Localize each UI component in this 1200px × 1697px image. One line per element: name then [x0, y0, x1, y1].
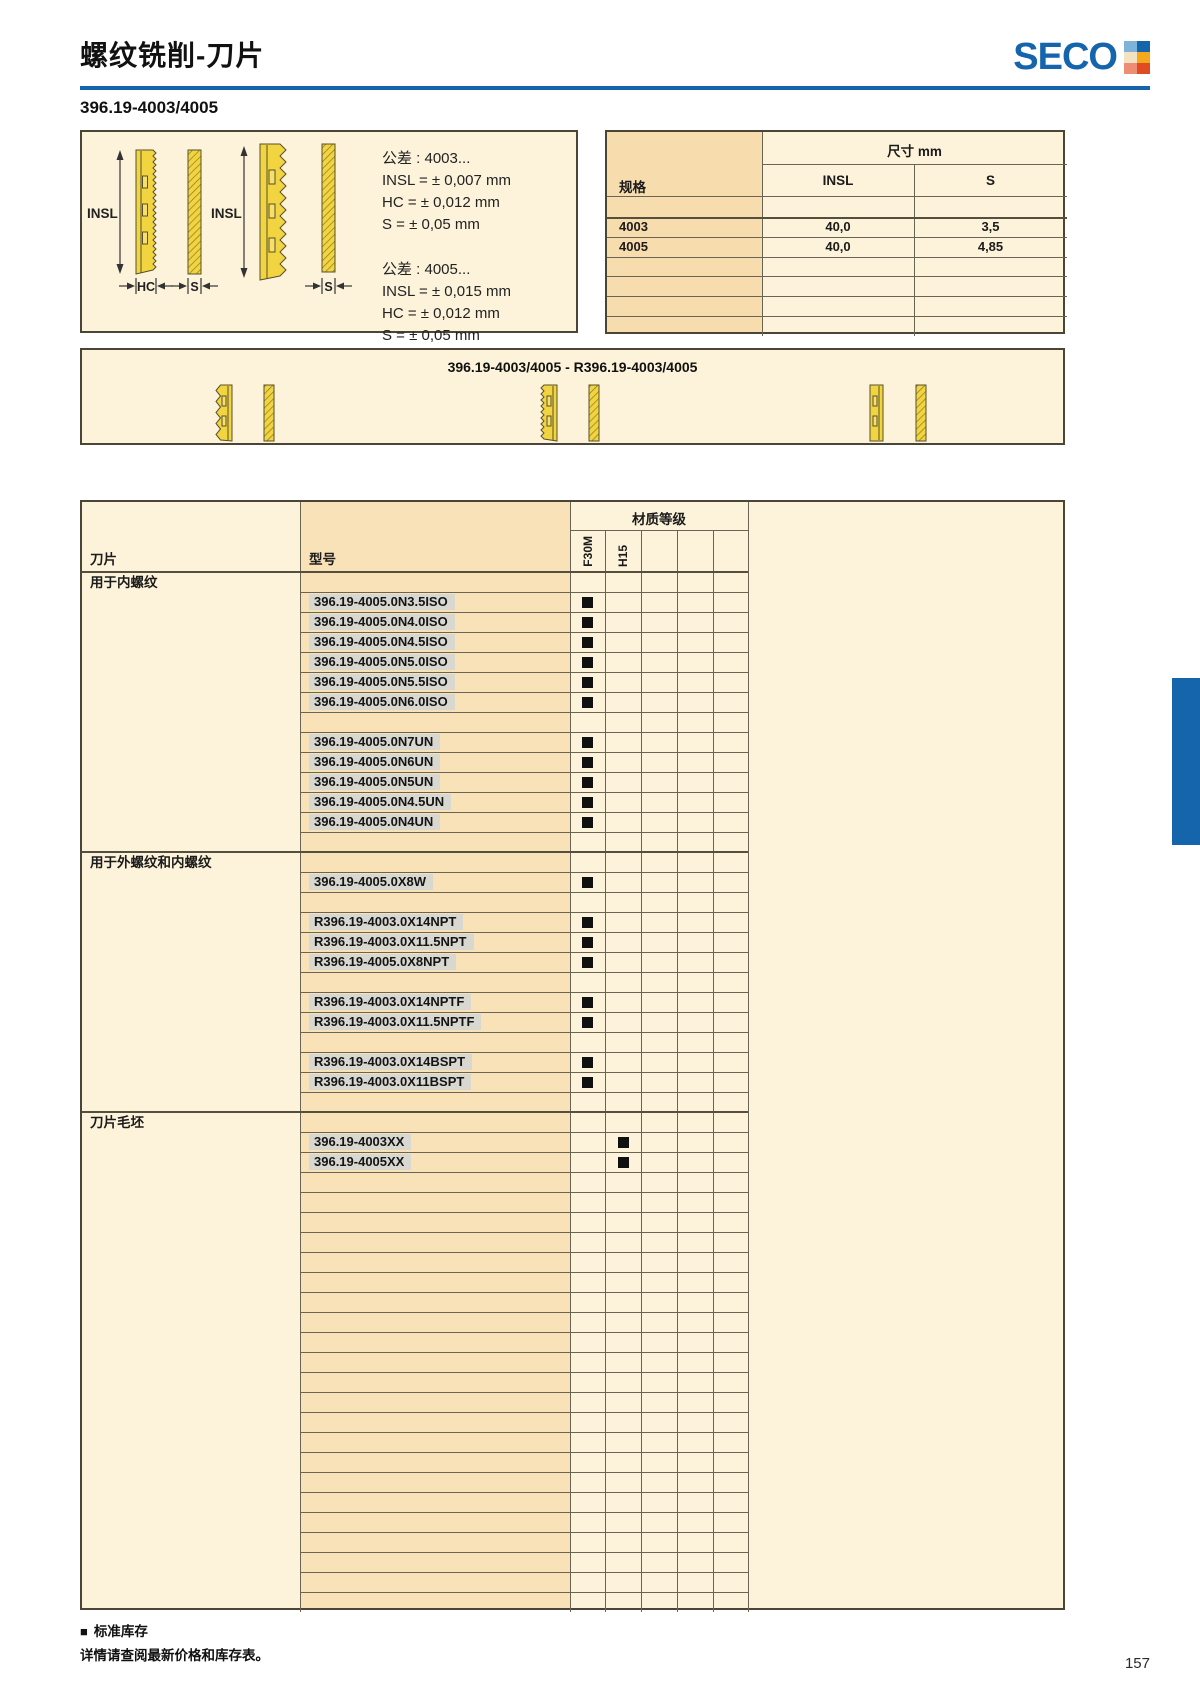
- seco-logo-mark-icon: [1124, 41, 1150, 74]
- grid-line: [300, 1472, 748, 1473]
- grid-line: [300, 1552, 748, 1553]
- spec-cell: [619, 259, 754, 276]
- model-number: 396.19-4005.0N4.5UN: [309, 794, 451, 810]
- logo-square: [1137, 63, 1150, 74]
- stock-mark-icon: [618, 1137, 629, 1148]
- insl-cell: [762, 278, 914, 295]
- page-title: 螺纹铣削-刀片: [80, 34, 264, 74]
- stock-mark-icon: [582, 757, 593, 768]
- grid-line: [607, 237, 1067, 238]
- insl-cell: 40,0: [762, 219, 914, 236]
- grid-line: [300, 912, 748, 913]
- grid-line: [300, 692, 748, 693]
- stock-mark-icon: [582, 677, 593, 688]
- grid-line: [82, 1111, 748, 1113]
- grid-line: [607, 257, 1067, 258]
- stock-mark-icon: [582, 917, 593, 928]
- grid-line: [300, 1052, 748, 1053]
- grid-line: [570, 530, 748, 531]
- banner-title: 396.19-4003/4005 - R396.19-4003/4005: [82, 359, 1063, 375]
- stock-mark-icon: [618, 1157, 629, 1168]
- grid-line: [300, 972, 748, 973]
- dimension-header: 尺寸 mm: [762, 140, 1067, 160]
- seco-logo-text: SECO: [1013, 40, 1117, 74]
- spec-cell: 4005: [619, 239, 754, 256]
- stock-mark-icon: [582, 597, 593, 608]
- insert-pair-icon: [864, 382, 934, 444]
- svg-text:HC: HC: [137, 280, 155, 294]
- model-number: R396.19-4003.0X14NPTF: [309, 994, 471, 1010]
- grid-line: [300, 1452, 748, 1453]
- tolerance-title: 公差 : 4003...: [382, 148, 574, 170]
- model-number: 396.19-4005.0N5UN: [309, 774, 440, 790]
- page-number: 157: [1125, 1655, 1150, 1672]
- tolerance-block: 公差 : 4003...INSL = ± 0,007 mmHC = ± 0,01…: [382, 148, 574, 236]
- grid-line: [300, 1312, 748, 1313]
- grid-line: [300, 1432, 748, 1433]
- model-number: R396.19-4003.0X11.5NPTF: [309, 1014, 481, 1030]
- tolerance-line: S = ± 0,05 mm: [382, 325, 574, 347]
- logo-square: [1124, 63, 1137, 74]
- grid-line: [300, 1512, 748, 1513]
- model-number: 396.19-4005.0N4UN: [309, 814, 440, 830]
- seco-logo: SECO: [1013, 40, 1150, 74]
- grid-line: [300, 732, 748, 733]
- grid-line: [570, 502, 571, 1612]
- grid-line: [300, 1152, 748, 1153]
- dimensions-table: 规格 尺寸 mm INSL S 400340,03,5400540,04,85: [605, 130, 1065, 334]
- grade-column-header: F30M: [570, 530, 605, 572]
- grid-line: [300, 1332, 748, 1333]
- model-number: 396.19-4005.0N7UN: [309, 734, 440, 750]
- grid-line: [300, 1292, 748, 1293]
- spec-cell: [619, 278, 754, 295]
- spec-cell: [619, 298, 754, 315]
- footer-note: 详情请查阅最新价格和库存表。: [80, 1644, 269, 1664]
- grade-column-header: [713, 530, 748, 572]
- stock-mark-icon: [582, 1057, 593, 1068]
- model-column-header: 型号: [309, 548, 336, 568]
- grid-line: [300, 772, 748, 773]
- s-cell: 4,85: [914, 239, 1067, 256]
- grid-line: [300, 1372, 748, 1373]
- grid-line: [300, 1172, 748, 1173]
- model-number: 396.19-4005.0X8W: [309, 874, 433, 890]
- model-number: 396.19-4005.0N6.0ISO: [309, 694, 455, 710]
- grid-line: [300, 592, 748, 593]
- model-number: 396.19-4005.0N6UN: [309, 754, 440, 770]
- insl-cell: 40,0: [762, 239, 914, 256]
- grid-line: [300, 1392, 748, 1393]
- s-cell: [914, 199, 1067, 216]
- grid-line: [300, 892, 748, 893]
- insert-dimension-diagram-icon: INSL HC S INSL S: [86, 136, 386, 328]
- svg-text:INSL: INSL: [211, 206, 242, 221]
- model-number: 396.19-4005.0N4.5ISO: [309, 634, 455, 650]
- model-number: R396.19-4003.0X11BSPT: [309, 1074, 471, 1090]
- grade-column-header: [641, 530, 677, 572]
- grid-line: [300, 1592, 748, 1593]
- tolerance-title: 公差 : 4005...: [382, 259, 574, 281]
- stock-legend: ■标准库存: [80, 1620, 148, 1640]
- grid-line: [300, 872, 748, 873]
- grid-line: [607, 196, 1067, 197]
- group-label: 用于内螺纹: [90, 574, 158, 592]
- tolerance-line: INSL = ± 0,007 mm: [382, 170, 574, 192]
- logo-square: [1137, 41, 1150, 52]
- stock-mark-icon: [582, 737, 593, 748]
- insl-cell: [762, 259, 914, 276]
- spec-cell: 4003: [619, 219, 754, 236]
- grid-line: [300, 832, 748, 833]
- grid-line: [300, 932, 748, 933]
- s-cell: [914, 278, 1067, 295]
- grid-line: [300, 1192, 748, 1193]
- grid-line: [300, 1212, 748, 1213]
- model-number: 396.19-4003XX: [309, 1134, 411, 1150]
- group-label: 用于外螺纹和内螺纹: [90, 854, 212, 872]
- grid-line: [300, 1352, 748, 1353]
- s-cell: [914, 318, 1067, 335]
- stock-mark-icon: [582, 997, 593, 1008]
- grade-header: 材质等级: [570, 508, 748, 528]
- grade-label: H15: [616, 545, 630, 567]
- s-column-header: S: [914, 173, 1067, 188]
- grid-line: [607, 276, 1067, 277]
- tolerance-line: S = ± 0,05 mm: [382, 214, 574, 236]
- section-tab: [1172, 678, 1200, 845]
- model-number: 396.19-4005.0N5.0ISO: [309, 654, 455, 670]
- grid-line: [300, 812, 748, 813]
- grid-line: [300, 632, 748, 633]
- insert-family-banner: 396.19-4003/4005 - R396.19-4003/4005: [80, 348, 1065, 445]
- model-number: R396.19-4005.0X8NPT: [309, 954, 456, 970]
- insl-cell: [762, 199, 914, 216]
- logo-square: [1137, 52, 1150, 63]
- group-label: 刀片毛坯: [90, 1114, 144, 1132]
- grid-line: [300, 1072, 748, 1073]
- stock-mark-icon: [582, 817, 593, 828]
- logo-square: [1124, 52, 1137, 63]
- logo-square: [1124, 41, 1137, 52]
- grid-line: [607, 296, 1067, 297]
- grid-line: [300, 672, 748, 673]
- tolerance-text: 公差 : 4003...INSL = ± 0,007 mmHC = ± 0,01…: [382, 148, 574, 370]
- header-rule: [80, 86, 1150, 90]
- svg-text:INSL: INSL: [87, 206, 118, 221]
- grid-line: [300, 952, 748, 953]
- grid-line: [300, 1252, 748, 1253]
- grid-line: [300, 1532, 748, 1533]
- stock-mark-icon: [582, 697, 593, 708]
- catalog-page: 螺纹铣削-刀片 SECO 396.19-4003/4005 INSL HC S …: [0, 0, 1200, 1697]
- spec-column-header: 规格: [619, 176, 646, 196]
- stock-mark-icon: [582, 1077, 593, 1088]
- svg-text:S: S: [324, 280, 332, 294]
- grid-line: [607, 316, 1067, 317]
- grid-line: [300, 712, 748, 713]
- grid-line: [300, 612, 748, 613]
- model-number: 396.19-4005.0N3.5ISO: [309, 594, 455, 610]
- grid-line: [82, 571, 748, 573]
- insl-cell: [762, 298, 914, 315]
- grid-line: [300, 1132, 748, 1133]
- insl-cell: [762, 318, 914, 335]
- model-number: R396.19-4003.0X11.5NPT: [309, 934, 474, 950]
- grid-line: [82, 851, 748, 853]
- grid-line: [300, 1092, 748, 1093]
- stock-legend-text: 标准库存: [94, 1624, 148, 1639]
- tolerance-line: HC = ± 0,012 mm: [382, 192, 574, 214]
- grid-line: [300, 1032, 748, 1033]
- svg-text:S: S: [190, 280, 198, 294]
- spec-cell: [619, 318, 754, 335]
- grid-line: [300, 752, 748, 753]
- grid-line: [300, 1412, 748, 1413]
- stock-mark-icon: [582, 1017, 593, 1028]
- model-number: 396.19-4005.0N4.0ISO: [309, 614, 455, 630]
- grade-column-header: H15: [605, 530, 641, 572]
- s-cell: [914, 259, 1067, 276]
- s-cell: [914, 298, 1067, 315]
- insl-column-header: INSL: [762, 173, 914, 188]
- grid-line: [300, 1492, 748, 1493]
- grid-line: [748, 502, 749, 1612]
- grid-line: [300, 792, 748, 793]
- tolerance-line: HC = ± 0,012 mm: [382, 303, 574, 325]
- tolerance-line: INSL = ± 0,015 mm: [382, 281, 574, 303]
- stock-mark-icon: [582, 657, 593, 668]
- insert-pair-icon: [537, 382, 607, 444]
- model-number: 396.19-4005XX: [309, 1154, 411, 1170]
- stock-mark-icon: [582, 797, 593, 808]
- grid-line: [300, 652, 748, 653]
- grid-line: [300, 1232, 748, 1233]
- grid-line: [300, 1012, 748, 1013]
- insert-selection-table: 刀片 型号 材质等级 F30MH15 用于内螺纹396.19-4005.0N3.…: [80, 500, 1065, 1610]
- s-cell: 3,5: [914, 219, 1067, 236]
- stock-mark-icon: [582, 957, 593, 968]
- section-title: 396.19-4003/4005: [80, 98, 218, 118]
- spec-cell: [619, 199, 754, 216]
- stock-mark-icon: [582, 617, 593, 628]
- model-number: R396.19-4003.0X14BSPT: [309, 1054, 472, 1070]
- stock-mark-icon: [582, 777, 593, 788]
- grid-line: [300, 502, 301, 1612]
- stock-square-icon: ■: [80, 1624, 88, 1639]
- stock-mark-icon: [582, 937, 593, 948]
- tolerance-box: INSL HC S INSL S 公差 : 4003...INSL = ± 0,…: [80, 130, 578, 333]
- tolerance-block: 公差 : 4005...INSL = ± 0,015 mmHC = ± 0,01…: [382, 259, 574, 347]
- stock-mark-icon: [582, 877, 593, 888]
- grade-label: F30M: [581, 536, 595, 567]
- grid-line: [300, 992, 748, 993]
- grid-line: [300, 1572, 748, 1573]
- grid-line: [300, 1272, 748, 1273]
- insert-pair-icon: [212, 382, 282, 444]
- model-number: 396.19-4005.0N5.5ISO: [309, 674, 455, 690]
- model-number: R396.19-4003.0X14NPT: [309, 914, 463, 930]
- stock-mark-icon: [582, 637, 593, 648]
- insert-column-header: 刀片: [90, 548, 117, 568]
- grade-column-header: [677, 530, 713, 572]
